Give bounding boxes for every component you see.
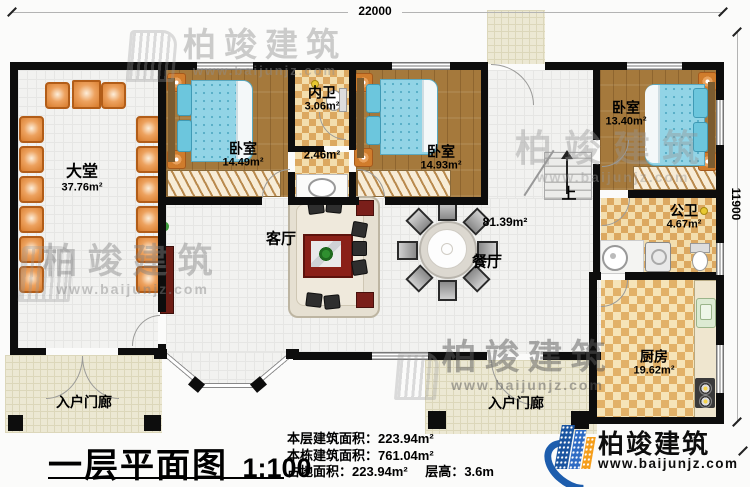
bed-headboard [357, 78, 364, 158]
toilet-tank [339, 88, 347, 112]
area-stats: 本层建筑面积：223.94m² 本栋建筑面积：761.04m² 占地面积：223… [287, 431, 494, 481]
wall-segment [158, 197, 262, 205]
hall-chair [19, 176, 44, 203]
dimension-height-label: 11900 [727, 180, 743, 228]
sofa-cushion [351, 221, 368, 238]
plant-icon [319, 247, 333, 261]
watermark-name: 柏竣建筑 [150, 28, 380, 61]
wall-segment [10, 62, 18, 355]
stat-label: 层高： [425, 464, 464, 479]
sofa-cushion [351, 259, 368, 276]
bed-blanket [645, 85, 660, 163]
kitchen-sink-basin [700, 304, 712, 320]
dimension-width-label: 22000 [348, 4, 402, 20]
room-label-living: 客厅 [266, 230, 296, 247]
room-area: 4.67m² [667, 219, 702, 232]
porch-top-floor [487, 10, 545, 64]
room-area: 81.39m² [483, 216, 528, 230]
stat-label: 本栋建筑面积： [287, 448, 378, 463]
wall-segment [593, 62, 600, 140]
wall-segment [288, 62, 295, 150]
window [716, 243, 724, 275]
window [392, 62, 450, 70]
room-name: 卧室 [606, 100, 647, 116]
wall-segment [625, 272, 723, 280]
room-label-public-bath: 公卫 4.67m² [667, 203, 702, 232]
sofa-cushion [352, 241, 367, 256]
plan-title: 一层平面图 [48, 447, 228, 485]
room-name: 入户门廊 [56, 394, 112, 410]
window [627, 62, 682, 70]
bed-headboard [708, 82, 715, 168]
room-area: 37.76m² [62, 182, 103, 195]
stat-label: 占地面积： [287, 464, 352, 479]
wall-segment [288, 197, 359, 205]
window [716, 345, 724, 393]
room-label-bedroom3: 卧室 13.40m² [606, 100, 647, 129]
room-name: 入户门廊 [488, 395, 544, 411]
side-table [356, 292, 374, 308]
stove-burner [699, 395, 712, 408]
hall-chair [19, 116, 44, 143]
room-label-inner-bath: 内卫 3.06m² [305, 85, 340, 114]
wall-segment [481, 62, 488, 205]
bay-post [154, 349, 167, 359]
room-label-great-hall: 大堂 37.76m² [62, 163, 103, 194]
dining-chair [438, 280, 457, 301]
washer-door [651, 249, 667, 265]
bed-pillow [693, 122, 708, 152]
room-name: 大堂 [62, 163, 103, 181]
porch-column [428, 411, 446, 429]
wall-segment [589, 272, 597, 424]
stat-line: 本栋建筑面积：761.04m² [287, 448, 494, 465]
wall-segment [158, 62, 166, 312]
hall-table [72, 80, 101, 109]
bed-blanket [422, 80, 437, 152]
hall-chair [19, 206, 44, 233]
window [716, 100, 724, 145]
wall-segment [385, 197, 488, 205]
room-area: 3.06m² [305, 101, 340, 114]
porch-column [8, 415, 23, 431]
stat-value: 223.94m² [378, 431, 434, 446]
room-area: 14.93m² [421, 160, 462, 173]
title-underline [48, 477, 284, 479]
brand-url: www.baijunjz.com [598, 456, 739, 471]
stat-value: 761.04m² [378, 448, 434, 463]
room-label-porch-left: 入户门廊 [56, 394, 112, 410]
stairs-up-text: 上 [561, 185, 576, 202]
watermark-logo-glyph [394, 352, 440, 400]
hall-chair [19, 146, 44, 173]
bed-pillow [366, 116, 381, 145]
room-name: 内卫 [305, 85, 340, 101]
wall-segment [349, 62, 356, 150]
room-area: 14.49m² [223, 157, 264, 170]
sofa-cushion [305, 292, 323, 308]
room-label-bedroom1: 卧室 14.49m² [223, 141, 264, 170]
bed-pillow [693, 88, 708, 118]
bed-pillow [177, 84, 192, 116]
room-area: 2.46m² [304, 149, 340, 162]
floor-plan-canvas: 22000 11900 [0, 0, 750, 487]
room-name: 餐厅 [472, 253, 502, 270]
stat-value: 223.94m² [352, 464, 408, 479]
hall-chair [101, 82, 126, 109]
stair-arrow-head [561, 150, 573, 159]
room-area: 13.40m² [606, 116, 647, 129]
bed-headboard [168, 78, 175, 162]
sink-icon [308, 178, 336, 198]
room-name: 卧室 [223, 141, 264, 157]
brand-logo: 柏竣建筑 www.baijunjz.com [540, 420, 748, 484]
room-name: 客厅 [266, 230, 296, 247]
stat-line: 本层建筑面积：223.94m² [287, 431, 494, 448]
sofa-cushion [323, 294, 340, 310]
room-label-kitchen: 厨房 19.62m² [634, 349, 675, 378]
wall-segment [293, 352, 372, 360]
stove-burner [699, 382, 712, 395]
room-label-bedroom2: 卧室 14.93m² [421, 144, 462, 173]
sink-drain [610, 253, 616, 259]
room-name: 厨房 [634, 349, 675, 365]
wall-segment [593, 198, 600, 272]
bay-post [286, 349, 299, 359]
room-name: 公卫 [667, 203, 702, 219]
open-area-label: 81.39m² [483, 216, 528, 230]
bed-pillow [366, 84, 381, 113]
stat-label: 本层建筑面积： [287, 431, 378, 446]
bed-pillow [177, 120, 192, 152]
stat-line: 占地面积：223.94m² 层高：3.6m [287, 464, 494, 481]
watermark-logo-glyph [18, 246, 75, 302]
wall-segment [628, 190, 716, 198]
wall-segment [543, 352, 601, 360]
stairs-up-label: 上 [561, 185, 576, 202]
dining-chair [397, 241, 418, 260]
hall-chair [45, 82, 70, 109]
plan-title-block: 一层平面图 1:100 [48, 438, 312, 487]
dining-table-center [441, 243, 453, 255]
porch-column [144, 415, 161, 431]
wall-segment [10, 348, 46, 355]
room-label-porch-mid: 入户门廊 [488, 395, 544, 411]
toilet-icon [692, 251, 708, 271]
room-area: 19.62m² [634, 365, 675, 378]
window [197, 62, 253, 70]
watermark-logo-glyph [126, 30, 179, 82]
room-name: 卧室 [421, 144, 462, 160]
room-label-corridor: 2.46m² [304, 149, 340, 162]
room-floor-living-dining [166, 198, 601, 354]
stat-value: 3.6m [464, 464, 494, 479]
room-label-dining: 餐厅 [472, 253, 502, 270]
